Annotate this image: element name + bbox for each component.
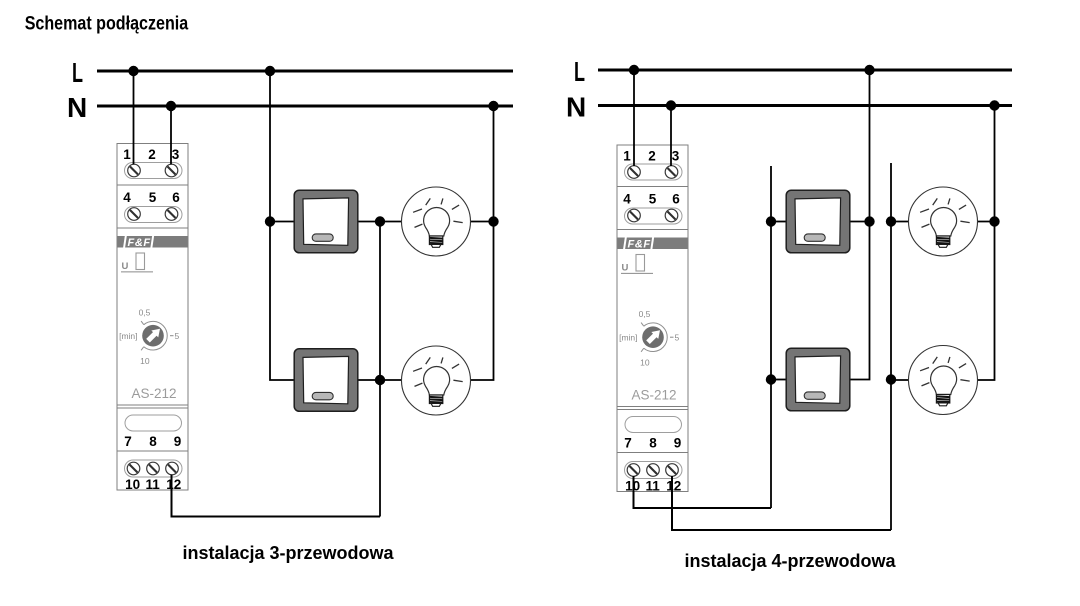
svg-text:N: N [566,92,586,123]
svg-text:L: L [574,56,585,87]
svg-text:instalacja 3-przewodowa: instalacja 3-przewodowa [182,543,394,563]
svg-text:L: L [72,57,83,88]
svg-text:instalacja 4-przewodowa: instalacja 4-przewodowa [684,551,896,571]
svg-text:N: N [67,92,87,123]
svg-text:Schemat podłączenia: Schemat podłączenia [25,13,189,34]
